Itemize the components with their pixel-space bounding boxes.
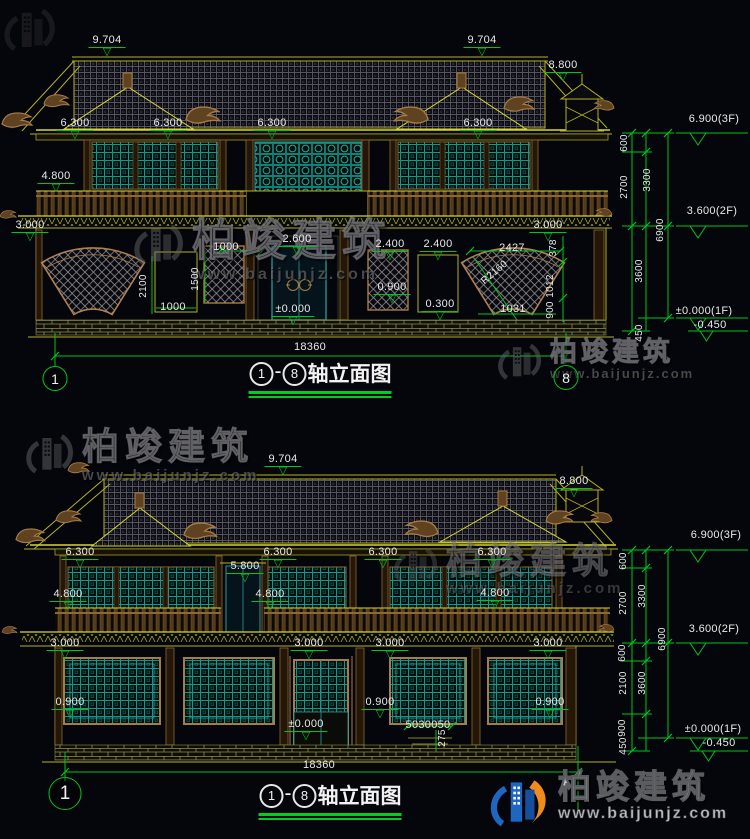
second-floor-door bbox=[220, 563, 266, 632]
base-brick bbox=[36, 320, 606, 335]
lattice-window bbox=[92, 142, 218, 189]
base-brick bbox=[55, 745, 576, 760]
second-floor bbox=[36, 134, 608, 216]
second-floor bbox=[55, 549, 611, 632]
entrance-door bbox=[244, 236, 354, 332]
lattice-window bbox=[390, 658, 466, 724]
fan-window-right bbox=[462, 248, 565, 315]
lattice-window bbox=[268, 567, 346, 608]
elevation-1-linework bbox=[0, 0, 750, 420]
elevation-2-linework bbox=[0, 420, 750, 839]
lattice-window bbox=[398, 142, 530, 189]
first-floor bbox=[28, 228, 614, 337]
axis-bubble-1: 1 bbox=[49, 777, 82, 810]
drawing-1-title: 1-8轴立面图 bbox=[249, 358, 392, 398]
lattice-window bbox=[64, 658, 160, 724]
title-text: 轴立面图 bbox=[308, 363, 392, 386]
title-text: 轴立面图 bbox=[318, 785, 402, 808]
lattice-window bbox=[390, 567, 552, 608]
lattice-window bbox=[368, 250, 408, 310]
axis-circle-to: 8 bbox=[293, 784, 317, 808]
center-lattice bbox=[255, 142, 361, 191]
wall-opening bbox=[155, 252, 197, 312]
entrance-door bbox=[290, 656, 352, 750]
lattice-window bbox=[68, 567, 214, 608]
axis-circle-from: 1 bbox=[250, 362, 274, 386]
plaque bbox=[246, 191, 368, 216]
wall-opening bbox=[418, 255, 458, 312]
lattice-window bbox=[488, 658, 562, 724]
axis-bubble-1: 1 bbox=[43, 366, 68, 391]
axis-circle-to: 8 bbox=[283, 362, 307, 386]
balcony-railing bbox=[55, 608, 610, 632]
drawing-2-title: 1-8轴立面图 bbox=[259, 780, 402, 820]
axis-bubble-8: 8 bbox=[554, 365, 579, 390]
first-floor bbox=[42, 646, 616, 762]
fan-window-left bbox=[42, 248, 145, 315]
lattice-window bbox=[184, 658, 274, 724]
axis-circle-from: 1 bbox=[260, 784, 284, 808]
cad-canvas: 柏竣建筑 www.baijunjz.com 柏竣建筑 www.baijunjz.… bbox=[0, 0, 750, 839]
lattice-window bbox=[204, 246, 244, 303]
